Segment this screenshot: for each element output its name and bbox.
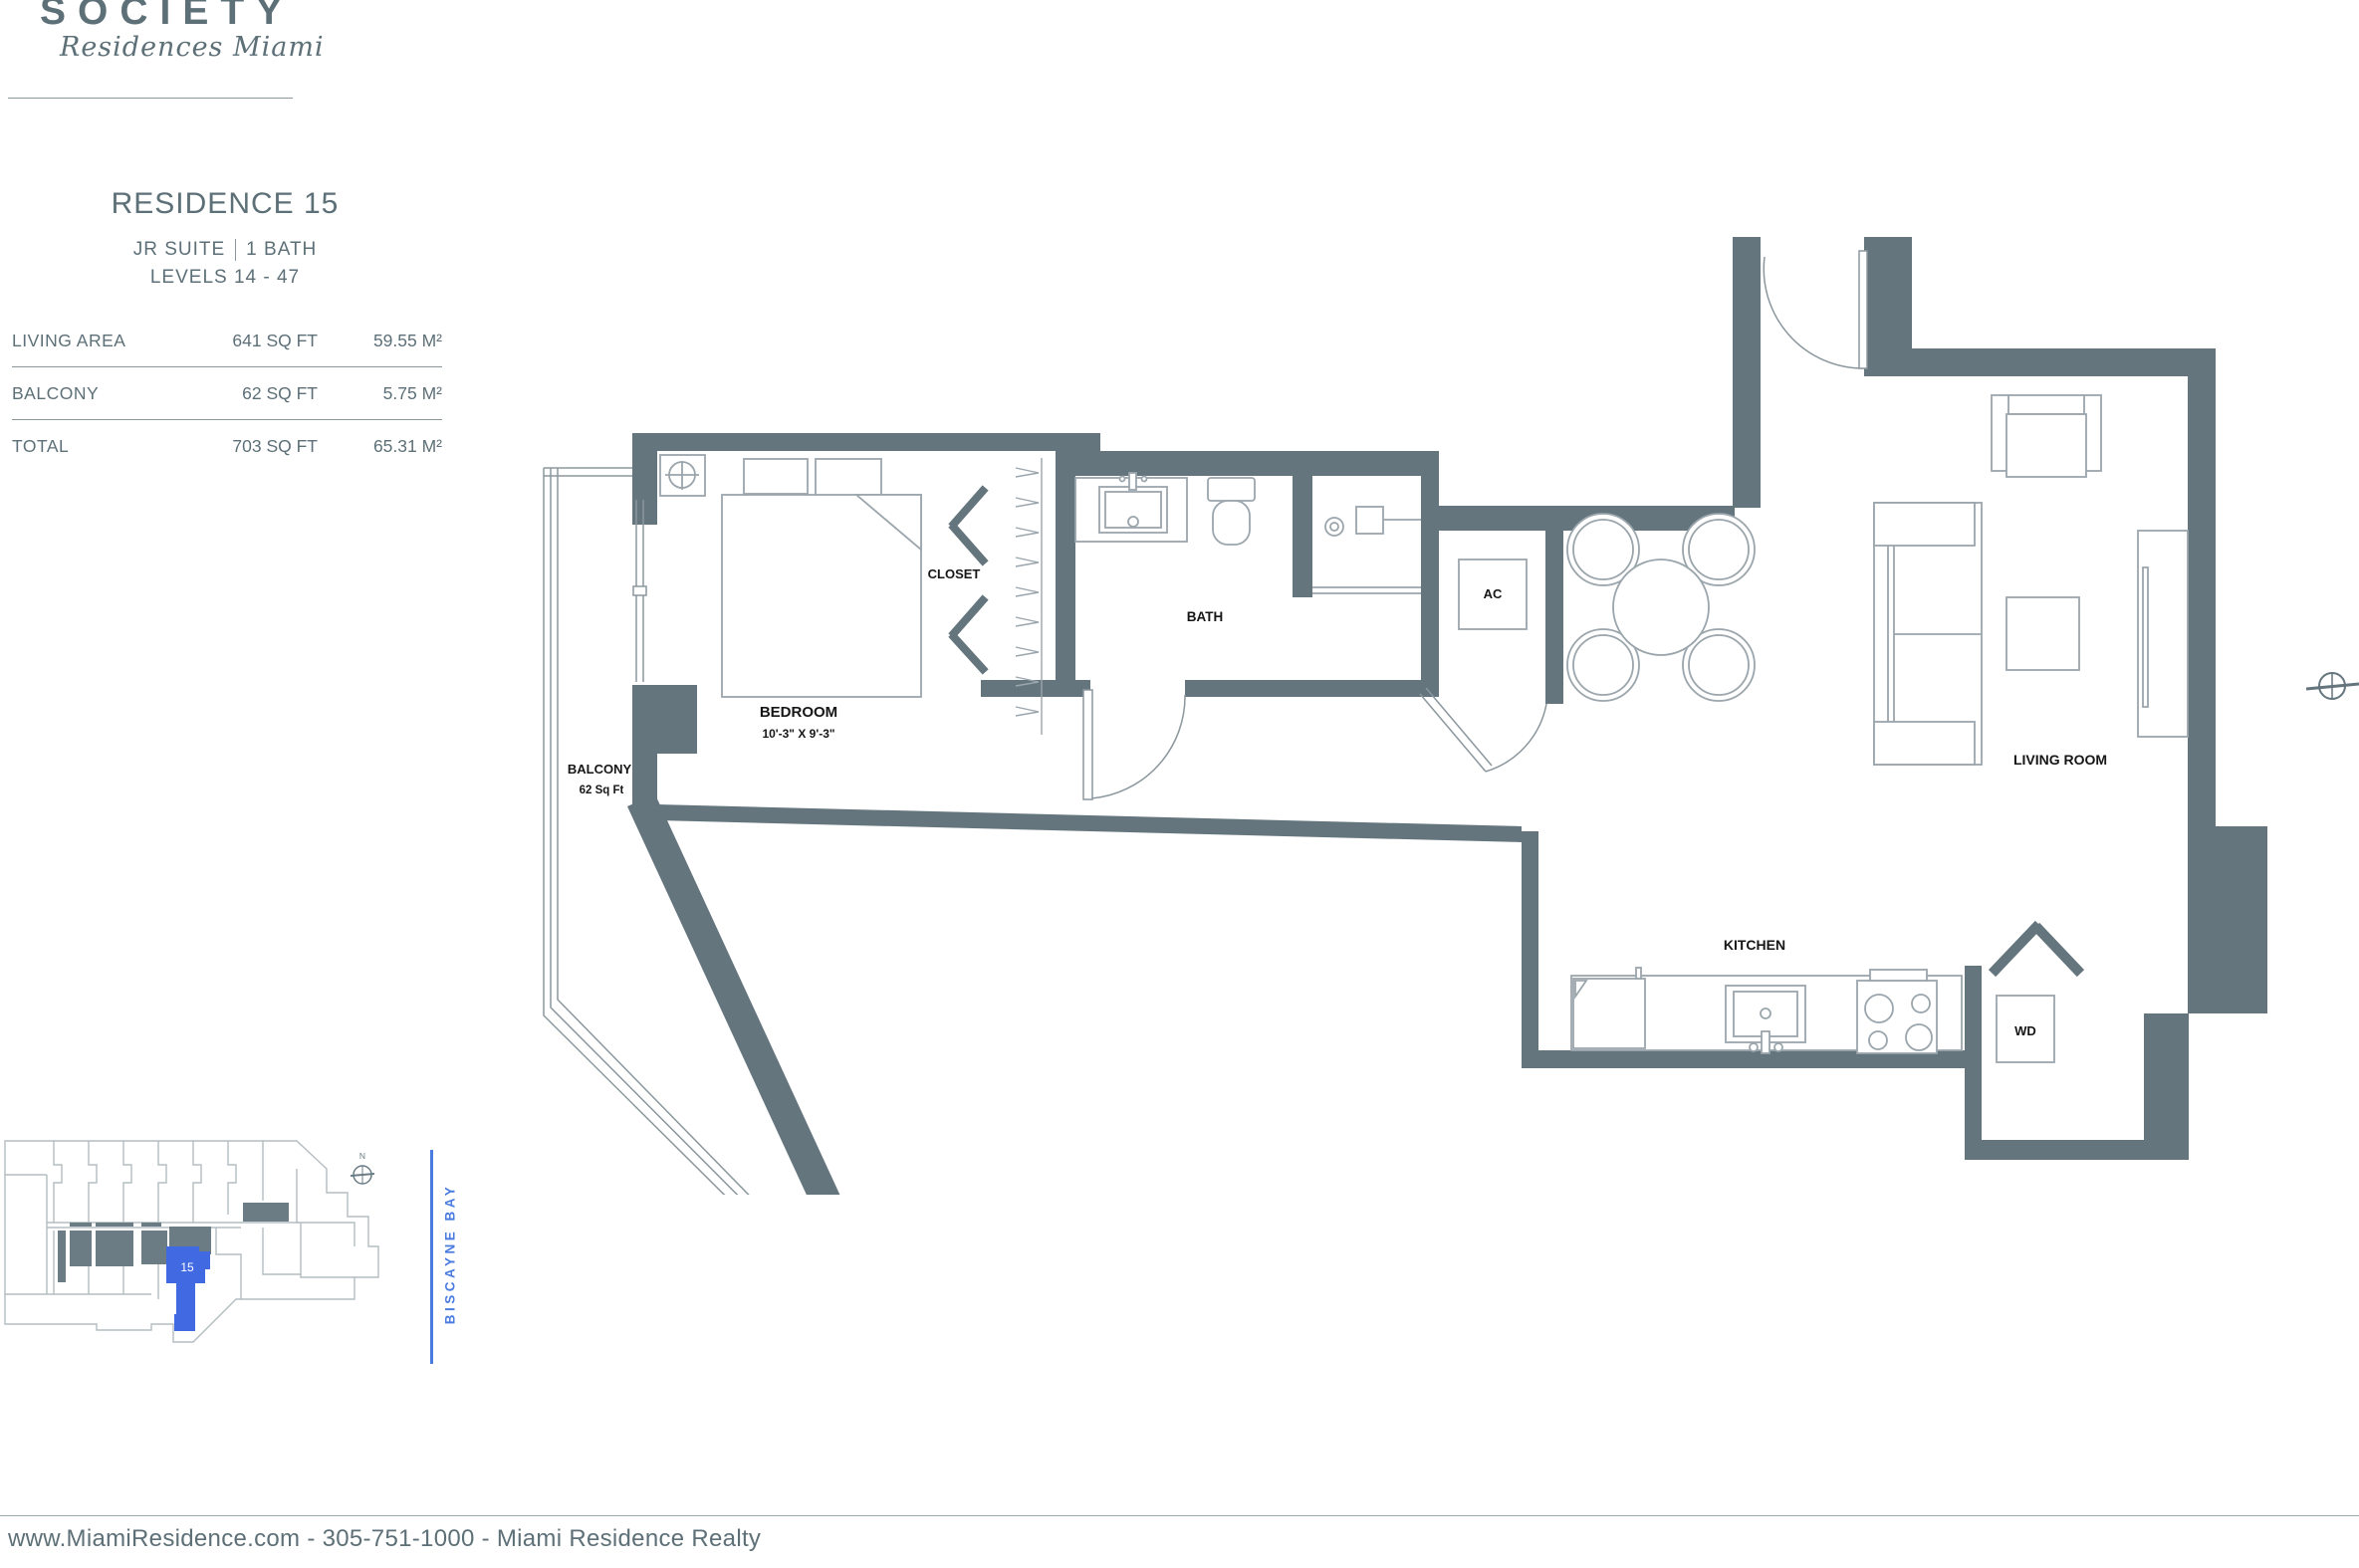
- armchair: [1992, 395, 2101, 477]
- table-row: BALCONY 62 SQ FT 5.75 M²: [12, 367, 442, 420]
- levels-label: LEVELS 14 - 47: [0, 267, 450, 289]
- kitchen-counter: [1571, 968, 1962, 1053]
- row-label: TOTAL: [12, 436, 168, 457]
- toilet: [1208, 478, 1255, 545]
- table-row: TOTAL 703 SQ FT 65.31 M²: [12, 420, 442, 472]
- suite-type: JR SUITE: [133, 239, 225, 261]
- bay-label: BISCAYNE BAY: [443, 1155, 458, 1354]
- dining-set: [1567, 514, 1755, 701]
- subtitle-divider: [235, 239, 236, 261]
- footer-divider: [0, 1515, 2359, 1516]
- area-table: LIVING AREA 641 SQ FT 59.55 M² BALCONY 6…: [12, 315, 442, 472]
- keyplan: 15 N: [2, 1135, 430, 1379]
- bed: [722, 459, 921, 697]
- bath-count: 1 BATH: [246, 239, 317, 261]
- bedroom-label: BEDROOM: [760, 704, 837, 721]
- wd-label: WD: [2014, 1023, 2036, 1038]
- row-sqft: 62 SQ FT: [168, 383, 318, 404]
- bay-shoreline: [430, 1150, 433, 1364]
- balcony-label: BALCONY: [568, 762, 632, 777]
- brand-logo: SOCIETY: [40, 0, 294, 34]
- row-sqft: 703 SQ FT: [168, 436, 318, 457]
- shower: [1312, 507, 1421, 593]
- header-divider: [8, 98, 293, 99]
- keyplan-unit-number: 15: [180, 1260, 194, 1274]
- sofa: [1874, 503, 1982, 765]
- footer-contact: www.MiamiResidence.com - 305-751-1000 - …: [8, 1525, 761, 1553]
- row-metric: 65.31 M²: [318, 436, 442, 457]
- row-label: LIVING AREA: [12, 331, 168, 351]
- residence-subtitle: JR SUITE 1 BATH: [0, 239, 450, 261]
- brand-tagline: Residences Miami: [60, 32, 325, 63]
- row-sqft: 641 SQ FT: [168, 331, 318, 351]
- plan-furniture: [660, 395, 2359, 1062]
- keyplan-unit-highlight: [166, 1246, 210, 1331]
- light-fixture-icon: [660, 455, 705, 496]
- kitchen-label: KITCHEN: [1724, 937, 1785, 953]
- balcony-area-label: 62 Sq Ft: [580, 784, 624, 796]
- compass-icon: [2306, 673, 2359, 699]
- tv-console: [2138, 531, 2188, 737]
- coffee-table: [2006, 597, 2079, 670]
- bath-vanity: [1075, 473, 1187, 542]
- keyplan-compass-icon: [351, 1166, 374, 1184]
- floorplan-sheet: SOCIETY Residences Miami RESIDENCE 15 JR…: [0, 0, 2359, 1568]
- floor-plan: BEDROOM 10'-3" X 9'-3" CLOSET BATH AC BA…: [538, 139, 2359, 1195]
- bedroom-dimensions: 10'-3" X 9'-3": [762, 727, 834, 741]
- keyplan-north-label: N: [359, 1151, 365, 1161]
- table-row: LIVING AREA 641 SQ FT 59.55 M²: [12, 315, 442, 367]
- living-room-label: LIVING ROOM: [2013, 752, 2107, 768]
- bath-label: BATH: [1187, 609, 1224, 624]
- row-label: BALCONY: [12, 383, 168, 404]
- ac-label: AC: [1484, 586, 1503, 601]
- closet-label: CLOSET: [928, 566, 981, 581]
- row-metric: 5.75 M²: [318, 383, 442, 404]
- sliding-glass-door: [633, 500, 646, 682]
- row-metric: 59.55 M²: [318, 331, 442, 351]
- page-title: RESIDENCE 15: [0, 187, 450, 221]
